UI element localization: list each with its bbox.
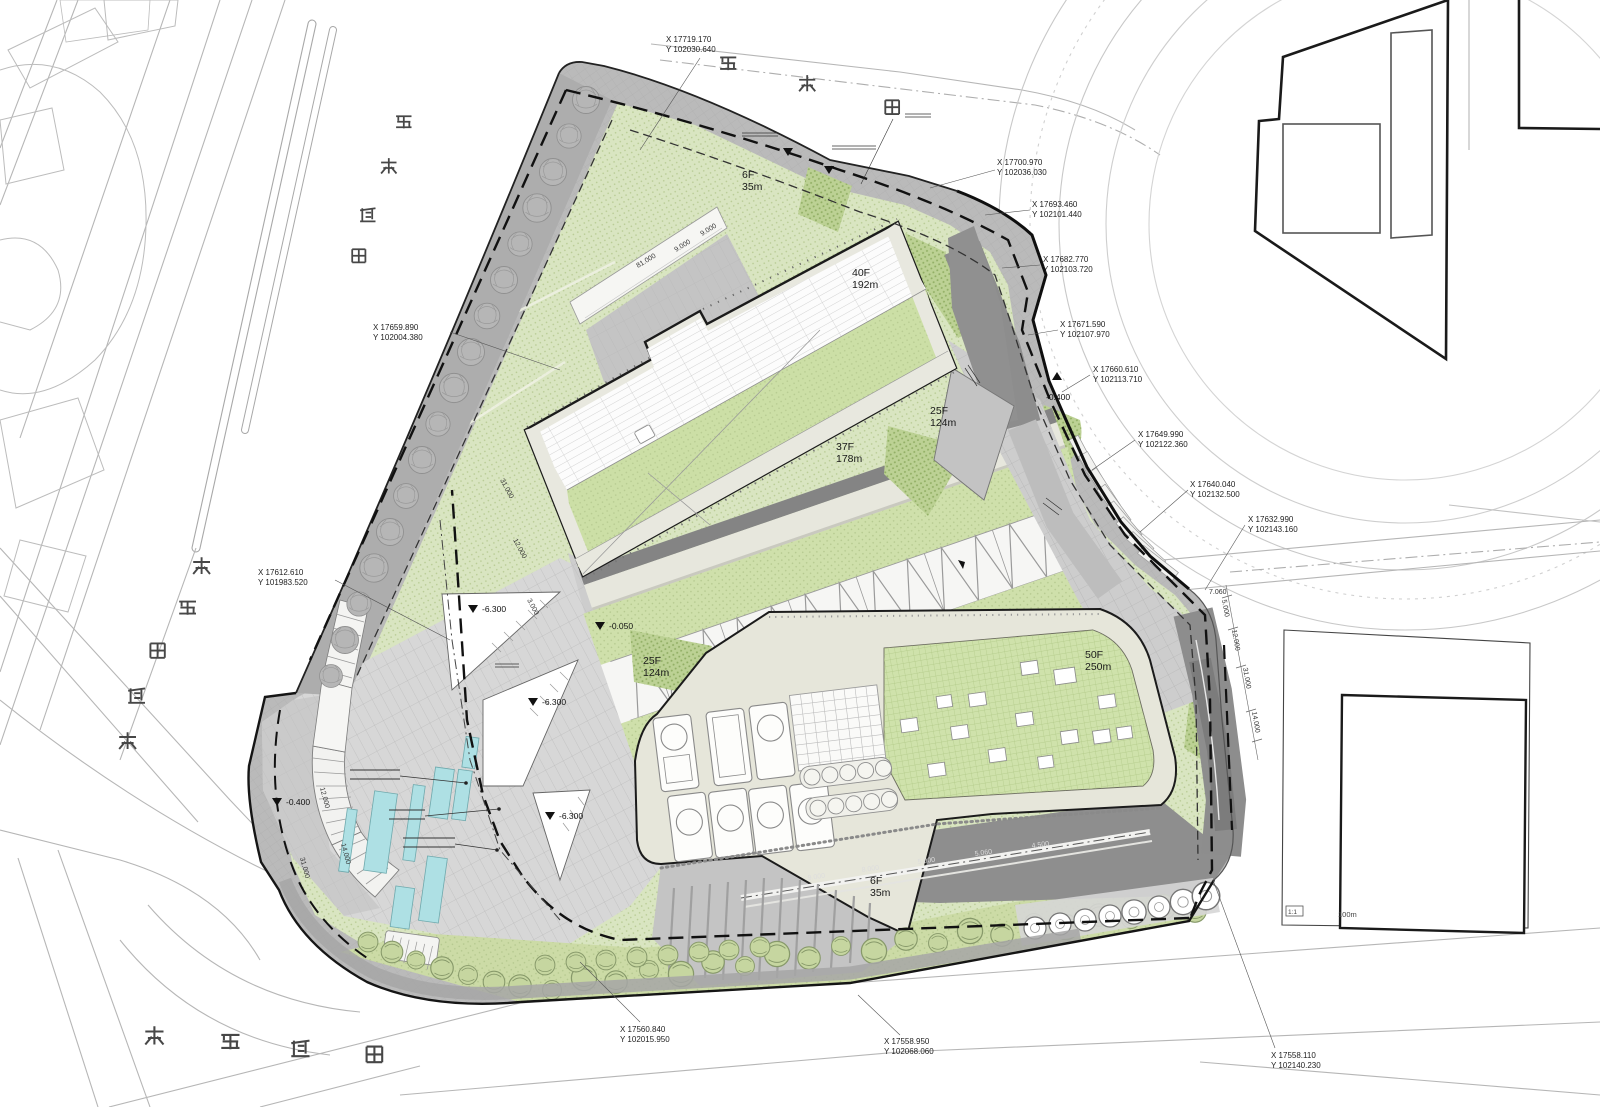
svg-text:124m: 124m [930,417,957,429]
svg-text:X 17693.460: X 17693.460 [1032,200,1078,209]
svg-text:192m: 192m [852,279,879,291]
svg-text:25F: 25F [930,405,948,417]
svg-text:Y 102030.640: Y 102030.640 [666,45,716,54]
svg-text:50F: 50F [1085,649,1103,661]
svg-text:Y 102140.230: Y 102140.230 [1271,1061,1321,1070]
svg-text:12.000: 12.000 [1230,629,1241,651]
svg-text:25F: 25F [643,655,661,667]
svg-text:35m: 35m [870,887,891,899]
svg-text:Y 101983.520: Y 101983.520 [258,578,308,587]
svg-text:37F: 37F [836,441,854,453]
svg-text:Y 102132.500: Y 102132.500 [1190,490,1240,499]
svg-text:7.060: 7.060 [1209,589,1227,596]
svg-text:250m: 250m [1085,661,1112,673]
svg-text:124m: 124m [643,667,670,679]
svg-text:X 17649.990: X 17649.990 [1138,430,1184,439]
svg-text:Y 102113.710: Y 102113.710 [1093,375,1143,384]
svg-text:Y 102107.970: Y 102107.970 [1060,330,1110,339]
svg-text:Y 102101.440: Y 102101.440 [1032,210,1082,219]
svg-text:1:1: 1:1 [1288,909,1297,916]
svg-text:6F: 6F [742,169,754,181]
svg-text:Y 102103.720: Y 102103.720 [1043,265,1093,274]
svg-text:X 17560.840: X 17560.840 [620,1025,666,1034]
svg-text:X 17660.610: X 17660.610 [1093,365,1139,374]
svg-text:-6.300: -6.300 [542,697,566,707]
svg-text:35m: 35m [742,181,763,193]
svg-text:Y 102068.060: Y 102068.060 [884,1047,934,1056]
svg-text:100m: 100m [1338,910,1357,919]
svg-text:X 17612.610: X 17612.610 [258,568,304,577]
svg-text:X 17558.110: X 17558.110 [1271,1051,1316,1060]
svg-text:40F: 40F [852,267,870,279]
svg-text:178m: 178m [836,453,863,465]
svg-text:X 17671.590: X 17671.590 [1060,320,1106,329]
svg-text:X 17682.770: X 17682.770 [1043,255,1089,264]
svg-text:X 17558.950: X 17558.950 [884,1037,930,1046]
svg-text:X 17719.170: X 17719.170 [666,35,712,44]
svg-text:Y 102036.030: Y 102036.030 [997,168,1047,177]
svg-text:Y 102004.380: Y 102004.380 [373,333,423,342]
svg-text:-6.300: -6.300 [482,604,506,614]
svg-text:X 17640.040: X 17640.040 [1190,480,1236,489]
svg-text:14.000: 14.000 [1250,711,1261,733]
svg-text:6F: 6F [870,875,882,887]
svg-text:-6.300: -6.300 [559,811,583,821]
svg-text:-0.400: -0.400 [286,797,310,807]
svg-text:5.000: 5.000 [1220,599,1230,618]
svg-text:Y 102143.160: Y 102143.160 [1248,525,1298,534]
svg-text:X 17659.890: X 17659.890 [373,323,419,332]
svg-text:-0.050: -0.050 [609,621,633,631]
svg-text:31.000: 31.000 [1241,667,1252,689]
svg-text:X 17632.990: X 17632.990 [1248,515,1294,524]
svg-text:-0.400: -0.400 [1046,392,1070,402]
svg-text:Y 102015.950: Y 102015.950 [620,1035,670,1044]
svg-text:Y 102122.360: Y 102122.360 [1138,440,1188,449]
svg-text:X 17700.970: X 17700.970 [997,158,1043,167]
